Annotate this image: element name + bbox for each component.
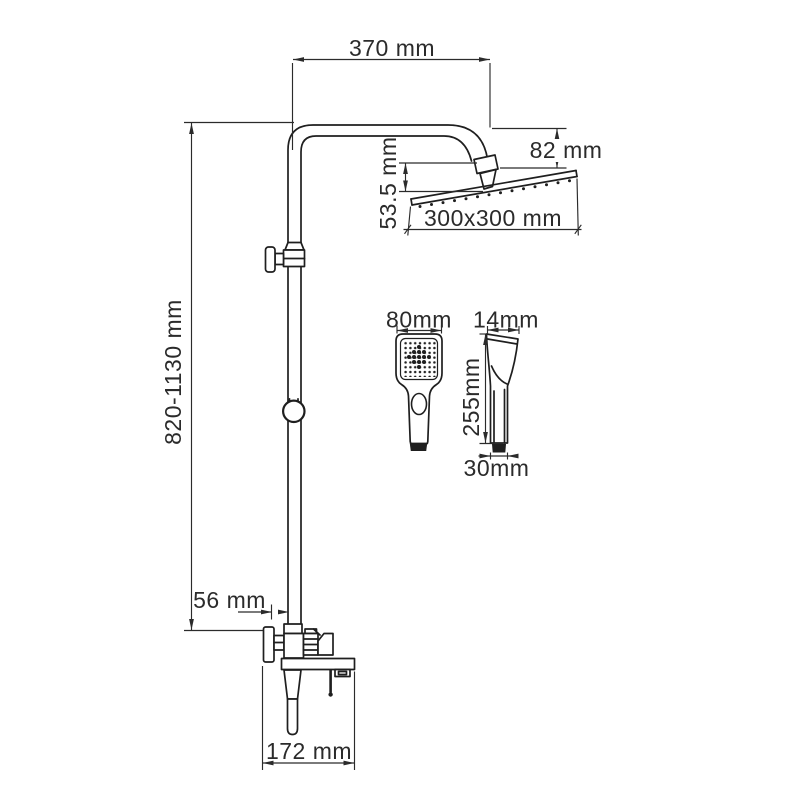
shower-system-drawing: 370 mm 820-1130 mm 82 mm 53.5 mm 300x30 — [0, 0, 800, 800]
handshower-front-view — [396, 334, 442, 451]
dim-head-size-label: 300x300 mm — [424, 205, 562, 231]
dim-hand-width-label: 80mm — [386, 307, 452, 333]
mode-button — [412, 394, 427, 415]
spout-aerator — [335, 670, 350, 677]
slider-connector — [283, 399, 304, 422]
dim-hand-base-label: 30mm — [464, 455, 530, 481]
dim-hand-length-label: 255mm — [458, 357, 484, 436]
dim-head-offset-label: 82 mm — [530, 137, 603, 163]
dim-arm-reach: 370 mm — [293, 35, 491, 150]
diverter-knob — [266, 243, 305, 273]
dim-column-height-label: 820-1130 mm — [160, 299, 186, 445]
wall-plate — [264, 627, 275, 662]
dim-arm-reach-label: 370 mm — [349, 35, 435, 61]
technical-drawing-page: 370 mm 820-1130 mm 82 mm 53.5 mm 300x30 — [0, 0, 800, 800]
dim-head-offset: 82 mm — [492, 129, 602, 169]
dim-spout-reach: 172 mm — [263, 666, 355, 770]
handshower-side-view — [487, 334, 519, 453]
mixer-handle — [284, 670, 301, 735]
handle-tip — [410, 444, 427, 452]
dim-wall-offset-label: 56 mm — [193, 587, 266, 613]
dim-hand-depth-label: 14mm — [473, 307, 539, 333]
spout — [282, 659, 355, 670]
dim-hand-width: 80mm — [386, 307, 452, 334]
dim-spout-reach-label: 172 mm — [266, 738, 352, 764]
check-valve-rod — [328, 670, 332, 697]
dim-hand-depth: 14mm — [473, 307, 539, 335]
dim-head-drop-label: 53.5 mm — [375, 137, 401, 230]
dim-wall-offset: 56 mm — [193, 587, 289, 620]
dim-hand-base: 30mm — [464, 453, 530, 482]
dim-column-height: 820-1130 mm — [160, 123, 294, 631]
mixer-body — [264, 624, 355, 735]
handle-tip-side — [492, 444, 506, 453]
